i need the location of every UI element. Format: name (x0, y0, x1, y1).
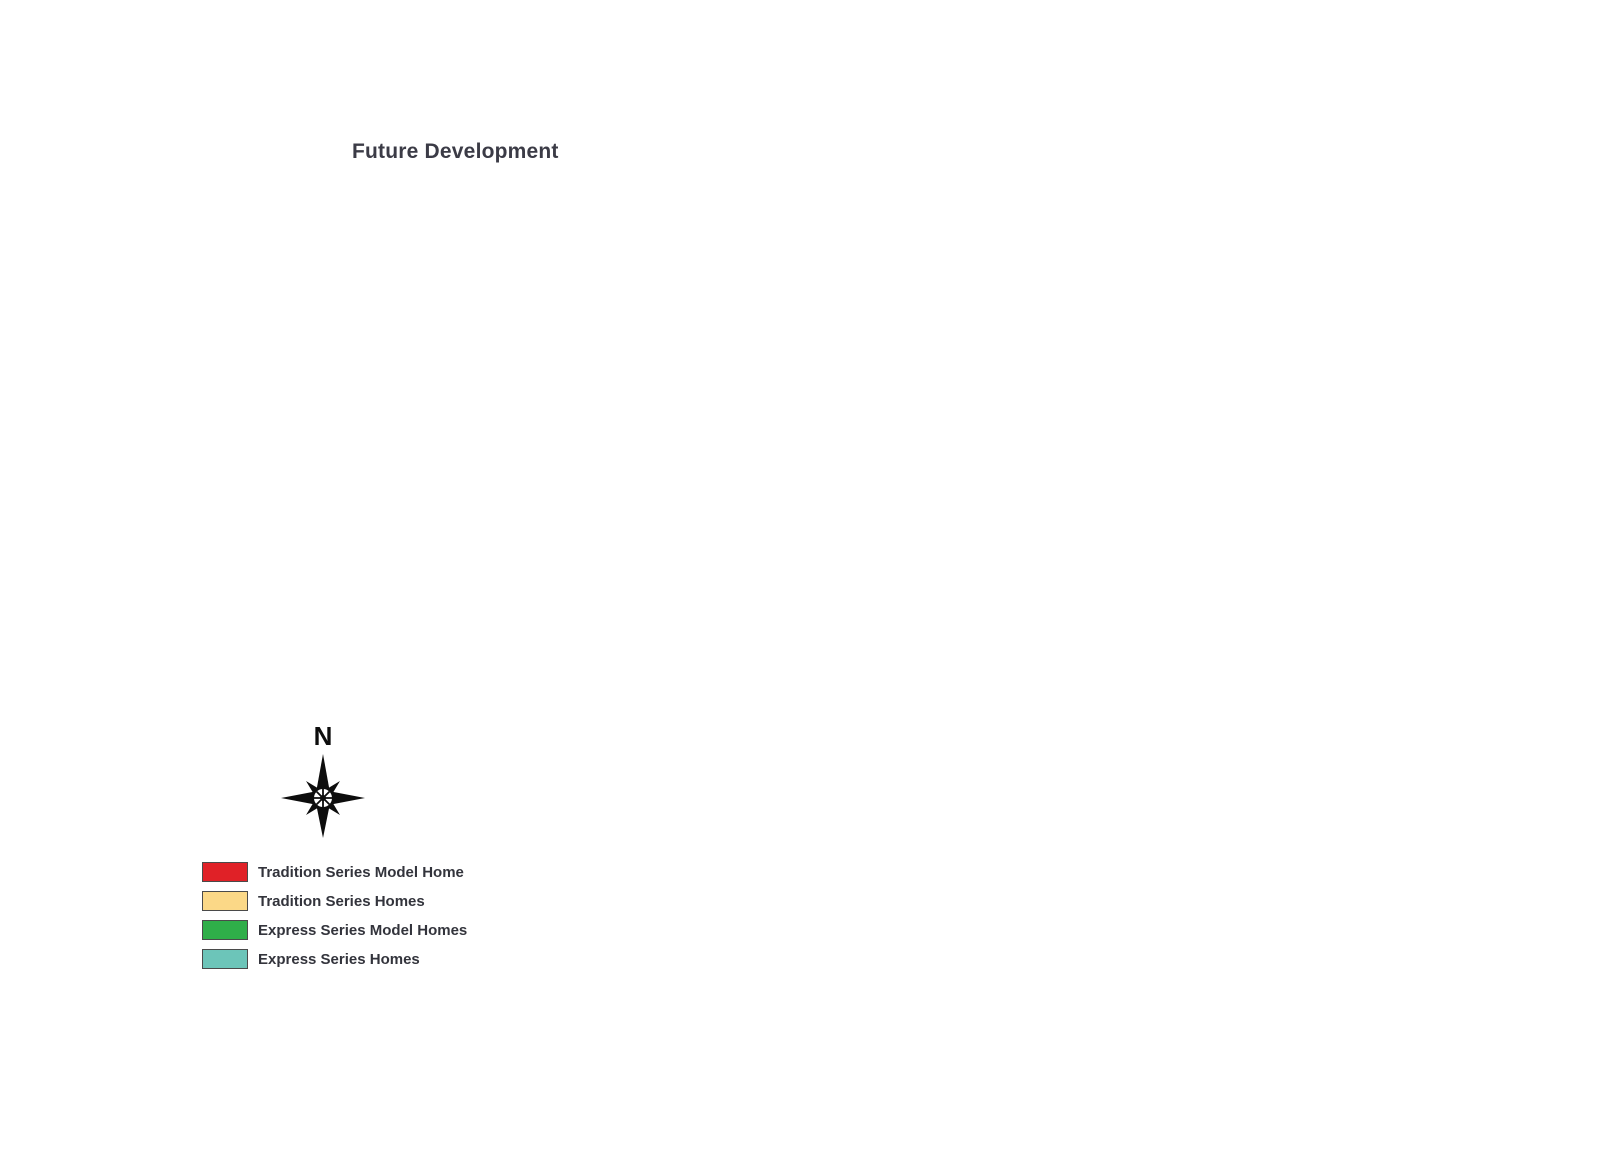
legend-swatch (202, 949, 248, 969)
legend-item-label: Tradition Series Model Home (258, 864, 464, 881)
site-map-page: Future Development N (0, 0, 1600, 1171)
future-development-label: Future Development (352, 140, 612, 164)
legend-swatch (202, 862, 248, 882)
compass-star-icon (273, 748, 373, 848)
legend-item: Express Series Model Homes (202, 920, 467, 940)
legend-item: Tradition Series Model Home (202, 862, 467, 882)
legend-item-label: Express Series Homes (258, 951, 420, 968)
legend-item-label: Tradition Series Homes (258, 893, 425, 910)
legend: Tradition Series Model HomeTradition Ser… (202, 862, 467, 978)
compass-north-label: N (268, 726, 378, 746)
legend-item: Express Series Homes (202, 949, 467, 969)
legend-swatch (202, 920, 248, 940)
legend-item-label: Express Series Model Homes (258, 922, 467, 939)
legend-item: Tradition Series Homes (202, 891, 467, 911)
site-map (0, 0, 1600, 1171)
compass-rose: N (268, 726, 378, 853)
legend-swatch (202, 891, 248, 911)
